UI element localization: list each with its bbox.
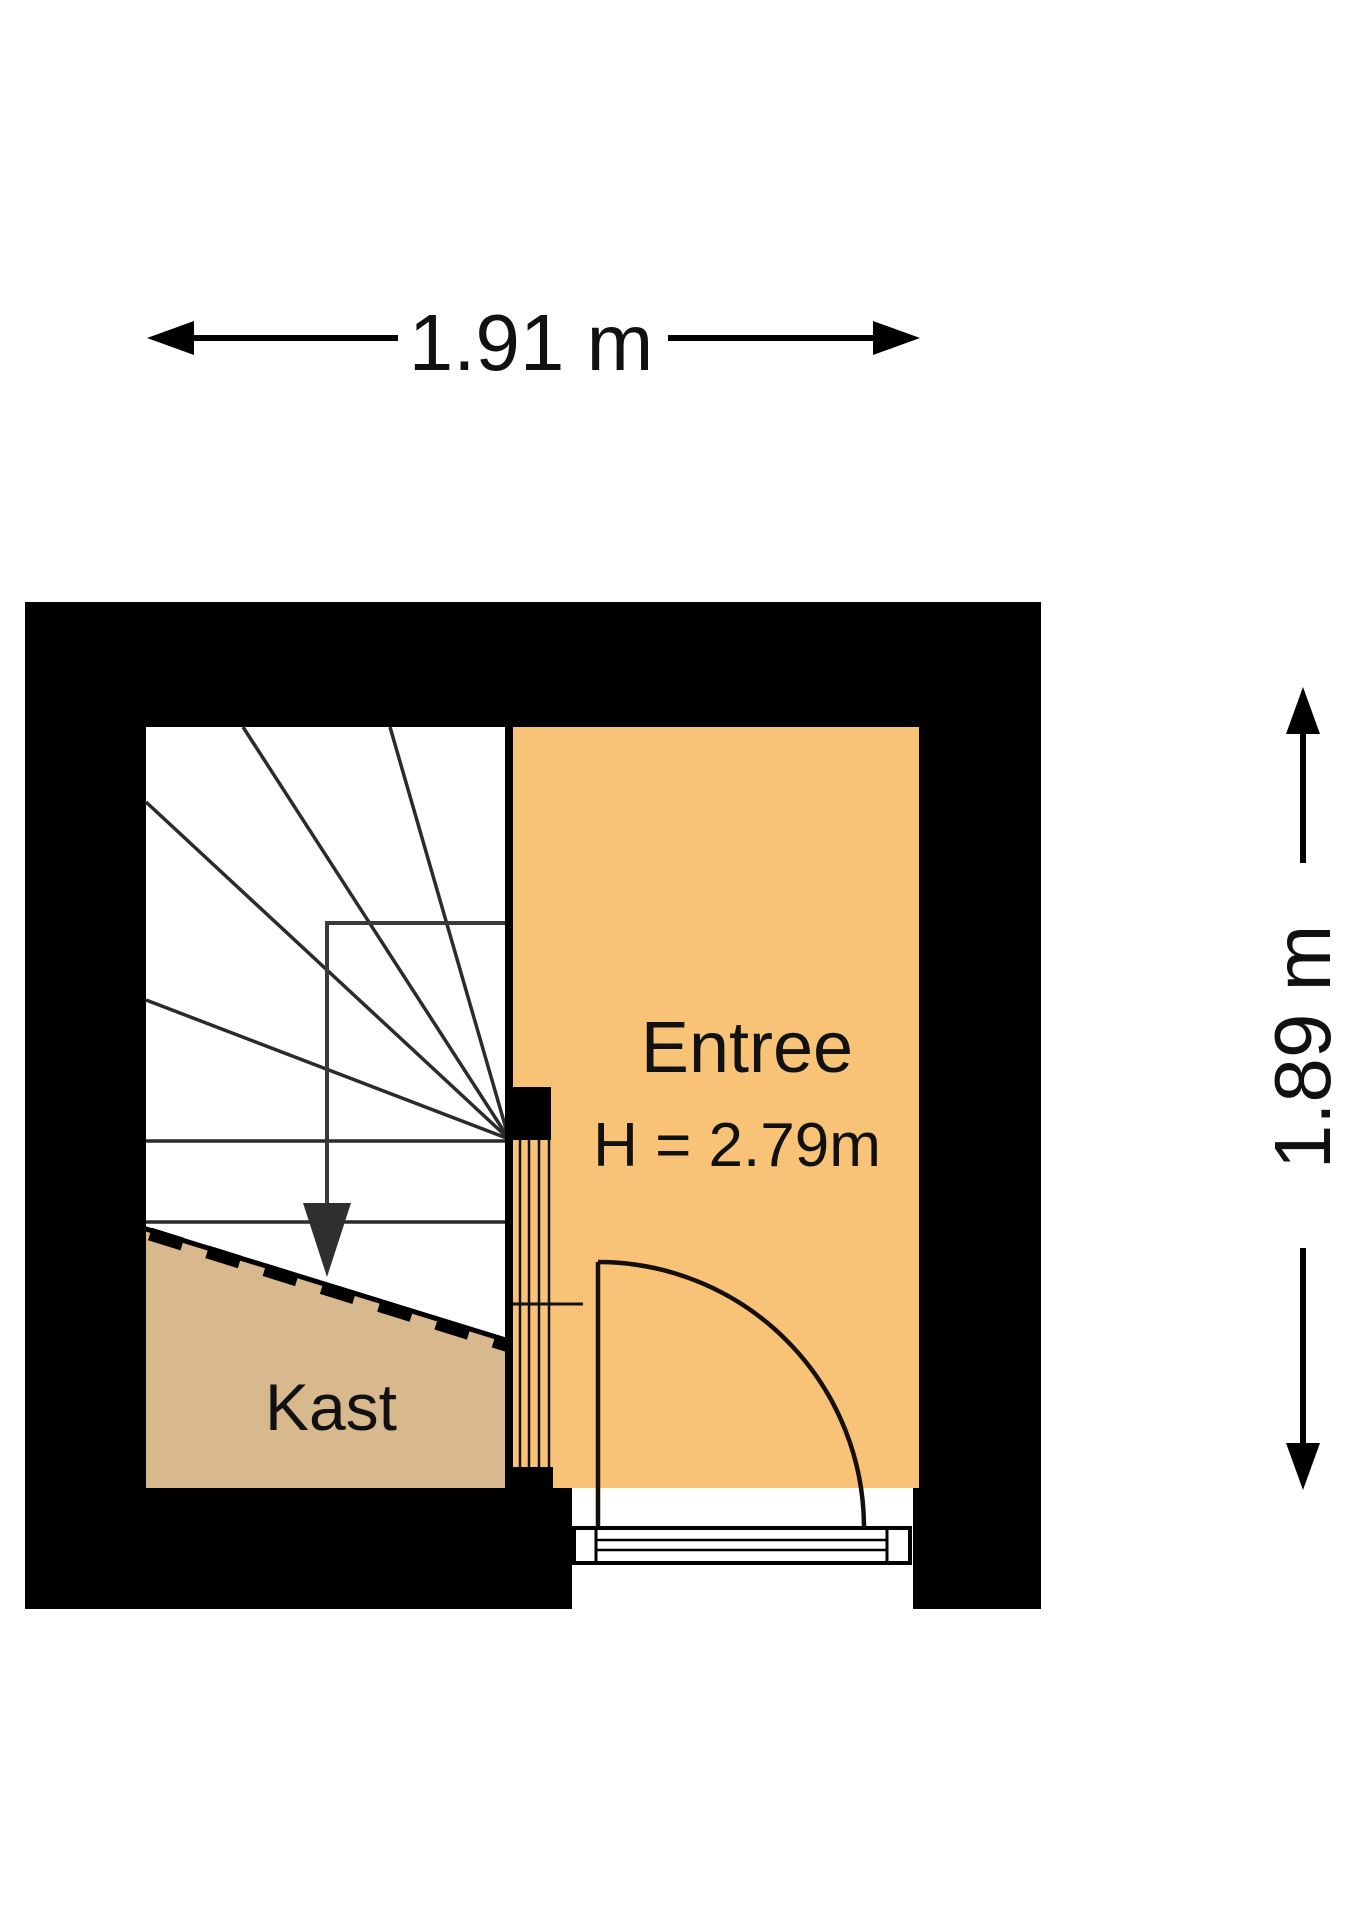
arrow-up-icon [1286,687,1320,734]
floorplan-page: 1.91 m 1.89 m [0,0,1358,1920]
threshold-frame [574,1528,910,1563]
floorplan-drawing: 1.91 m 1.89 m [0,0,1358,1920]
horizontal-dimension: 1.91 m [147,298,920,387]
height-dimension-label: 1.89 m [1258,925,1347,1170]
kast-label: Kast [265,1370,397,1444]
entree-label: Entree [641,1008,853,1088]
entrance-threshold [574,1528,910,1563]
entree-height-label: H = 2.79m [593,1111,881,1180]
vertical-dimension: 1.89 m [1258,687,1347,1490]
entree-room [513,727,919,1488]
arrow-down-icon [1286,1443,1320,1490]
width-dimension-label: 1.91 m [409,298,654,387]
arrow-left-icon [147,321,194,355]
door-post [505,1087,551,1140]
arrow-right-icon [873,321,920,355]
bottom-post [505,1467,553,1492]
